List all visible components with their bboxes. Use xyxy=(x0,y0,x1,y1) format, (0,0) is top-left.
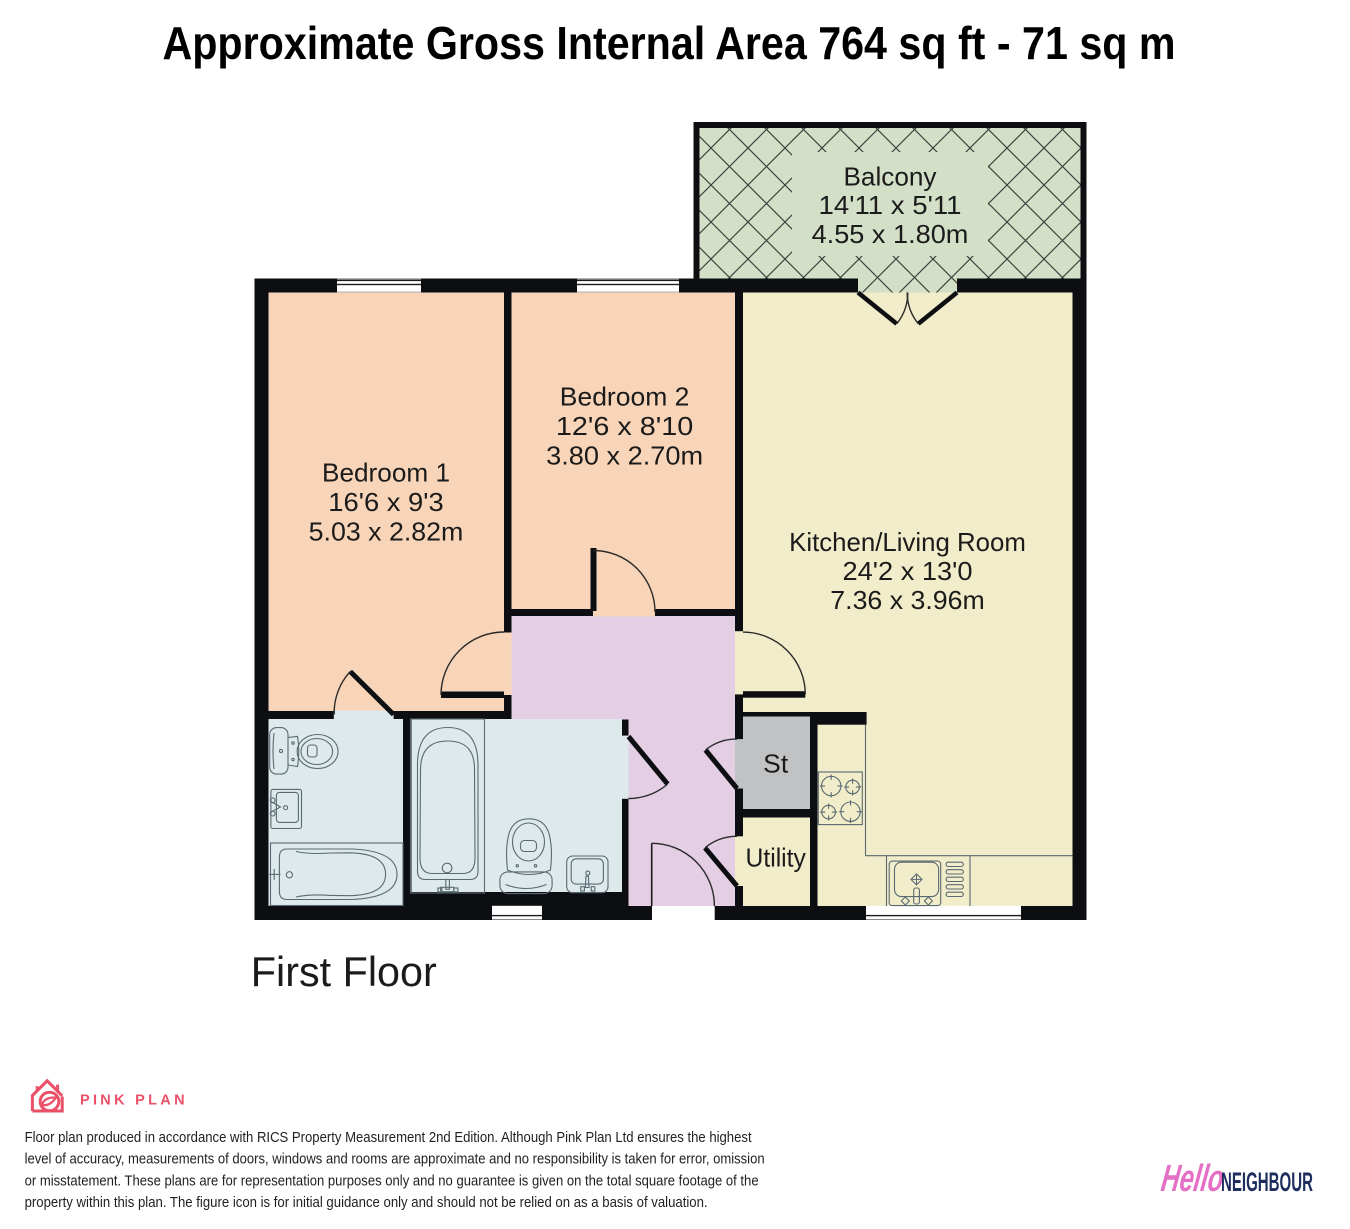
svg-text:St: St xyxy=(763,748,789,778)
svg-text:Floor plan produced in accorda: Floor plan produced in accordance with R… xyxy=(25,1130,752,1146)
svg-text:Bedroom 1: Bedroom 1 xyxy=(322,457,450,487)
svg-text:property within this plan. The: property within this plan. The figure ic… xyxy=(25,1195,708,1211)
svg-text:7.36 x 3.96m: 7.36 x 3.96m xyxy=(830,585,984,615)
svg-text:Kitchen/Living Room: Kitchen/Living Room xyxy=(789,527,1026,557)
svg-text:Bedroom 2: Bedroom 2 xyxy=(560,381,690,411)
svg-text:Hello: Hello xyxy=(1159,1157,1227,1200)
svg-text:Approximate Gross Internal Are: Approximate Gross Internal Area 764 sq f… xyxy=(163,17,1176,69)
svg-text:or misstatement. These plans a: or misstatement. These plans are for rep… xyxy=(25,1173,759,1189)
svg-text:Balcony: Balcony xyxy=(844,161,937,191)
svg-text:PINK PLAN: PINK PLAN xyxy=(80,1093,188,1109)
svg-text:12'6 x 8'10: 12'6 x 8'10 xyxy=(556,411,693,441)
svg-text:5.03 x 2.82m: 5.03 x 2.82m xyxy=(309,517,464,547)
svg-text:First Floor: First Floor xyxy=(251,948,437,995)
svg-text:14'11 x 5'11: 14'11 x 5'11 xyxy=(819,190,962,220)
svg-text:Utility: Utility xyxy=(746,843,806,873)
svg-text:3.80 x 2.70m: 3.80 x 2.70m xyxy=(546,441,703,471)
svg-text:NEIGHBOUR: NEIGHBOUR xyxy=(1221,1167,1313,1197)
svg-text:24'2 x 13'0: 24'2 x 13'0 xyxy=(843,556,973,586)
svg-text:4.55 x 1.80m: 4.55 x 1.80m xyxy=(812,219,969,249)
svg-text:level of accuracy, measurement: level of accuracy, measurements of doors… xyxy=(25,1152,765,1168)
svg-text:16'6 x 9'3: 16'6 x 9'3 xyxy=(328,487,443,517)
